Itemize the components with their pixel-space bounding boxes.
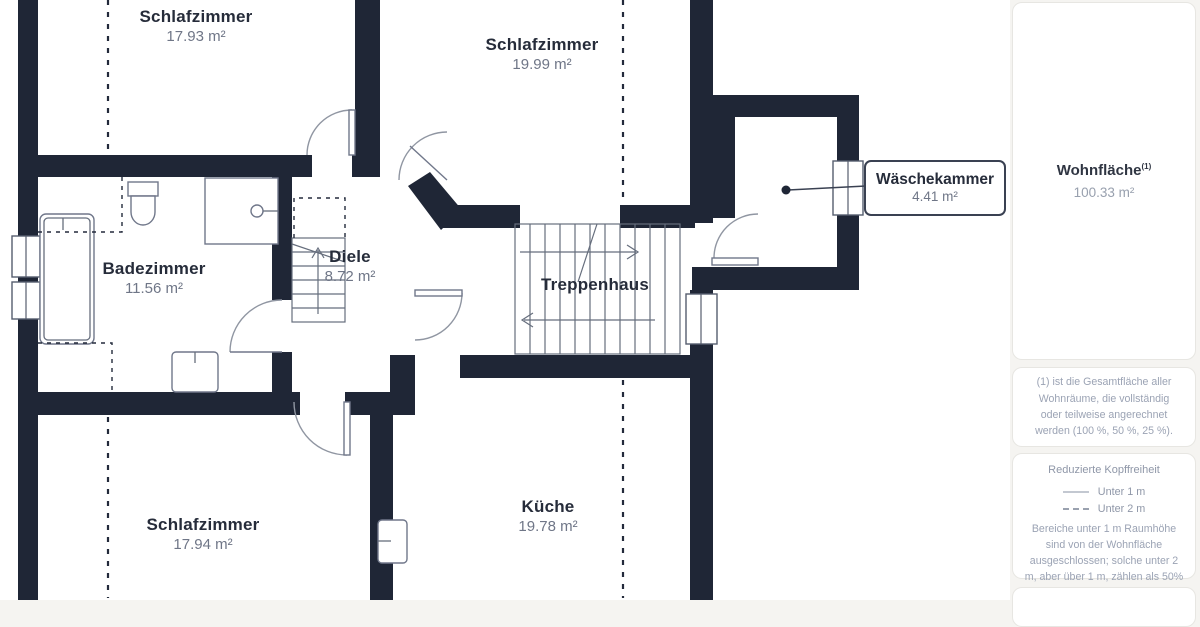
room-area: 11.56 m² xyxy=(102,280,205,299)
toilet xyxy=(128,182,158,225)
room-area: 19.99 m² xyxy=(486,56,599,75)
room-area: 4.41 m² xyxy=(912,189,958,205)
door-bedroom2 xyxy=(399,132,447,180)
room-name: Badezimmer xyxy=(102,258,205,279)
bathtub xyxy=(40,214,94,344)
legend-item-under-2m: Unter 2 m xyxy=(1013,500,1195,517)
living-area-title: Wohnfläche(1) xyxy=(1057,162,1152,179)
room-area: 19.78 m² xyxy=(518,518,577,537)
room-callout-waeschekammer: Wäschekammer 4.41 m² xyxy=(864,160,1006,216)
floor-plan-drawing xyxy=(0,0,1010,600)
bathroom-sink xyxy=(172,352,218,392)
room-label-schlafzimmer-3: Schlafzimmer 17.94 m² xyxy=(147,514,260,555)
room-label-diele: Diele 8.72 m² xyxy=(325,246,376,287)
room-name: Schlafzimmer xyxy=(140,6,253,27)
room-label-badezimmer: Badezimmer 11.56 m² xyxy=(102,258,205,299)
legend-title: Reduzierte Kopffreiheit xyxy=(1013,464,1195,476)
living-area-label: Wohnfläche xyxy=(1057,162,1142,179)
room-name: Treppenhaus xyxy=(541,274,649,295)
room-area: 8.72 m² xyxy=(325,268,376,287)
living-area-value: 100.33 m² xyxy=(1074,185,1135,200)
room-label-schlafzimmer-2: Schlafzimmer 19.99 m² xyxy=(486,34,599,75)
door-waeschekammer xyxy=(712,214,758,265)
shower xyxy=(205,178,278,244)
door-bathroom xyxy=(230,300,282,352)
window-left-upper xyxy=(12,236,40,277)
window-left-lower xyxy=(12,282,40,319)
kitchen-sink xyxy=(378,520,407,563)
room-name: Diele xyxy=(325,246,376,267)
dashed-line-swatch xyxy=(1063,508,1089,510)
door-bedroom3 xyxy=(294,402,350,455)
room-name: Küche xyxy=(518,496,577,517)
solid-line-swatch xyxy=(1063,491,1089,493)
room-area: 17.94 m² xyxy=(147,536,260,555)
room-label-schlafzimmer-1: Schlafzimmer 17.93 m² xyxy=(140,6,253,47)
room-label-treppenhaus: Treppenhaus xyxy=(541,274,649,295)
floor-plan: Schlafzimmer 17.93 m² Schlafzimmer 19.99… xyxy=(0,0,1010,600)
room-name: Schlafzimmer xyxy=(147,514,260,535)
legend-item-label: Unter 1 m xyxy=(1098,486,1145,498)
legend-item-under-1m: Unter 1 m xyxy=(1013,483,1195,500)
info-sidebar: Wohnfläche(1) 100.33 m² (1) ist die Gesa… xyxy=(1010,0,1200,600)
room-name: Schlafzimmer xyxy=(486,34,599,55)
window-right-lower xyxy=(686,294,717,344)
door-kitchen xyxy=(415,290,462,340)
legend-item-label: Unter 2 m xyxy=(1098,503,1145,515)
living-area-card: Wohnfläche(1) 100.33 m² xyxy=(1012,2,1196,360)
door-bedroom1 xyxy=(307,110,355,155)
next-card-partial xyxy=(1012,587,1196,627)
footnote-text: (1) ist die Gesamtfläche aller Wohnräume… xyxy=(1013,374,1195,440)
walls xyxy=(18,0,859,600)
room-name: Wäschekammer xyxy=(876,171,994,190)
footnote-card: (1) ist die Gesamtfläche aller Wohnräume… xyxy=(1012,367,1196,447)
room-label-kueche: Küche 19.78 m² xyxy=(518,496,577,537)
room-area: 17.93 m² xyxy=(140,28,253,47)
legend-card: Reduzierte Kopffreiheit Unter 1 m Unter … xyxy=(1012,453,1196,579)
living-area-footnote-marker: (1) xyxy=(1141,162,1151,171)
